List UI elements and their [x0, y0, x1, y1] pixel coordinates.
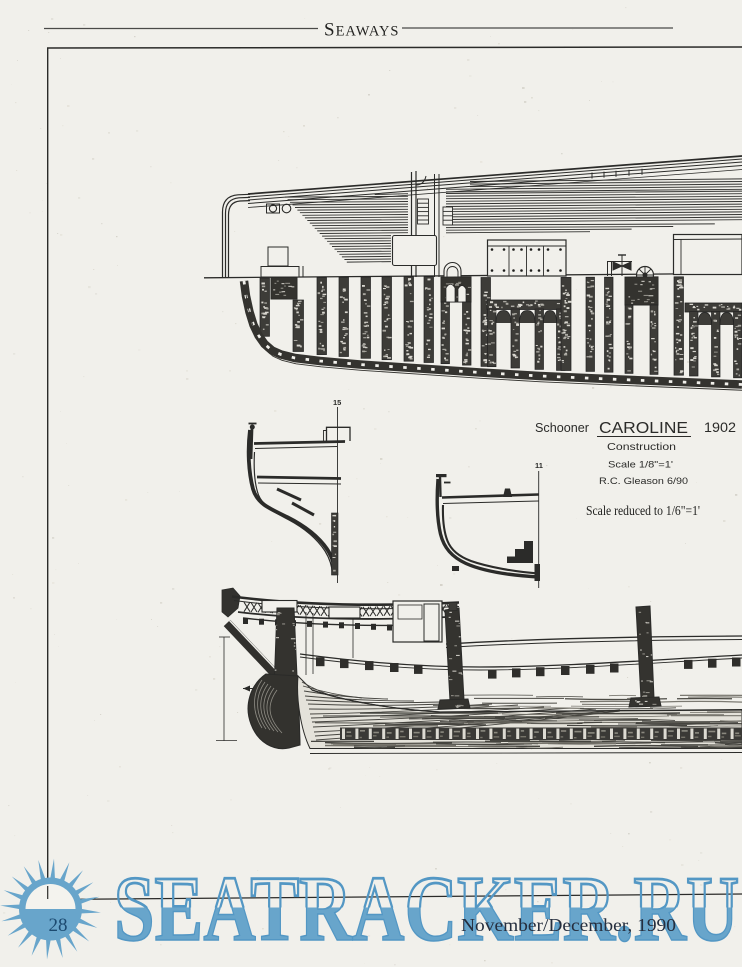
- svg-text:November/December, 1990: November/December, 1990: [461, 915, 676, 935]
- svg-text:11: 11: [535, 461, 543, 470]
- svg-text:1902: 1902: [704, 420, 736, 435]
- svg-text:15: 15: [333, 398, 341, 407]
- svg-text:Scale 1/8"=1': Scale 1/8"=1': [608, 460, 673, 471]
- svg-text:R.C. Gleason 6/90: R.C. Gleason 6/90: [599, 476, 688, 487]
- svg-text:SEAWAYS: SEAWAYS: [324, 20, 400, 41]
- svg-text:Schooner: Schooner: [535, 420, 590, 435]
- svg-text:Construction: Construction: [607, 442, 676, 453]
- svg-text:CAROLINE: CAROLINE: [599, 420, 688, 437]
- svg-text:Scale reduced to 1/6"=1': Scale reduced to 1/6"=1': [586, 503, 700, 518]
- svg-text:28: 28: [49, 915, 68, 936]
